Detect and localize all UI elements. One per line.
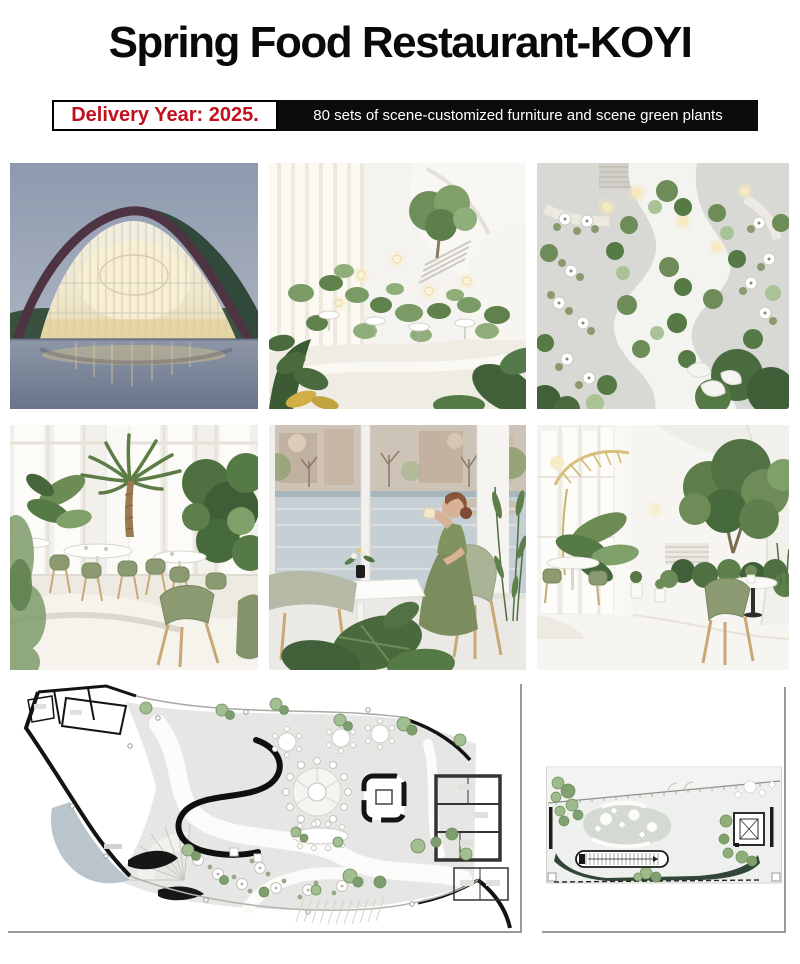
upper-floor-plan-sheet (542, 687, 786, 933)
photo-tree-lounge (537, 425, 789, 670)
winding-path-illustration (537, 163, 789, 409)
photo-palm-dining (10, 425, 258, 670)
delivery-year-badge: Delivery Year: 2025. (52, 100, 278, 131)
photo-atrium-garden (269, 163, 526, 409)
palm-dining-illustration (10, 425, 258, 670)
photo-winding-path (537, 163, 789, 409)
photo-window-guest (269, 425, 526, 670)
page-title: Spring Food Restaurant-KOYI (0, 18, 800, 68)
window-guest-illustration (269, 425, 526, 670)
poster-page: Spring Food Restaurant-KOYI Delivery Yea… (0, 0, 800, 964)
ground-floor-plan-sheet (8, 684, 522, 933)
photo-gallery (10, 163, 789, 670)
exterior-dusk-illustration (10, 163, 258, 409)
upper-floor-plan-drawing (546, 765, 782, 885)
furniture-info-banner: 80 sets of scene-customized furniture an… (278, 100, 758, 131)
photo-exterior-dusk (10, 163, 258, 409)
tree-lounge-illustration (537, 425, 789, 670)
subheader-bar: Delivery Year: 2025. 80 sets of scene-cu… (52, 100, 758, 131)
atrium-garden-illustration (269, 163, 526, 409)
ground-floor-plan-drawing (8, 684, 520, 931)
